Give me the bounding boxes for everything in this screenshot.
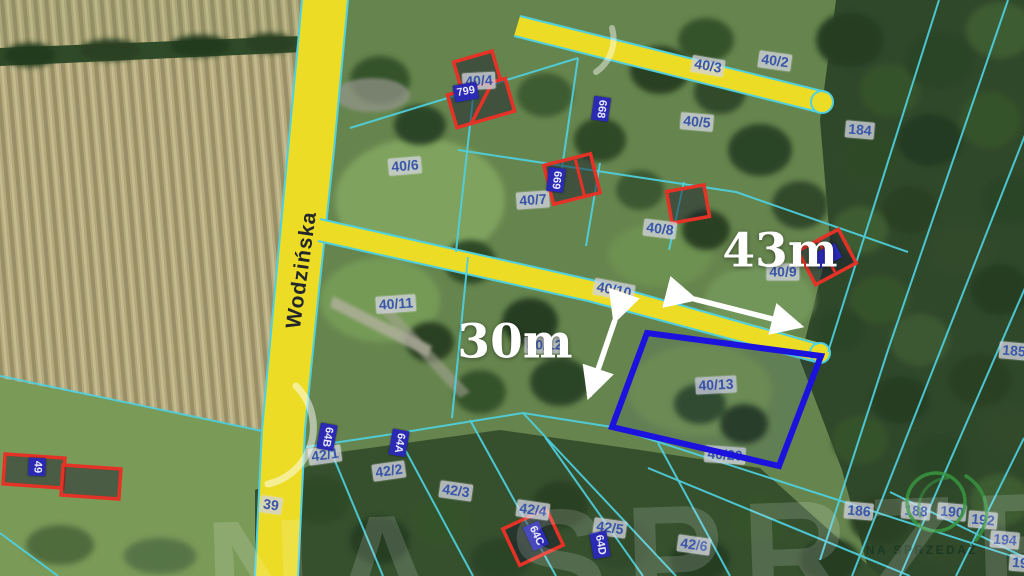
terrain xyxy=(0,0,1024,576)
parcel-label-185: 185 xyxy=(999,341,1024,360)
parcel-label-184: 184 xyxy=(845,120,876,139)
parcel-label-186: 186 xyxy=(844,501,875,520)
parcel-label-40-6: 40/6 xyxy=(388,156,423,176)
parcel-label-188: 188 xyxy=(901,501,932,520)
building-label-49: 49 xyxy=(28,458,46,477)
parcel-label-190: 190 xyxy=(937,502,968,521)
parcel-label-40-5: 40/5 xyxy=(680,112,715,132)
measurement-30m: 30m xyxy=(457,315,572,370)
satellite-map-view[interactable]: 40/2 40/3 40/4 40/5 40/6 40/7 40/8 40/9 … xyxy=(0,0,1024,576)
parcel-label-40-13: 40/13 xyxy=(695,375,737,394)
building-label-669: 669 xyxy=(546,167,566,193)
map-base-layer xyxy=(0,0,1024,576)
parcel-label-40-20: 40/20 xyxy=(704,445,746,465)
parcel-label-192: 192 xyxy=(968,510,999,529)
parcel-label-196-partial: 19 xyxy=(1009,554,1024,573)
parcel-label-40-11: 40/11 xyxy=(375,294,416,314)
building-label-668: 668 xyxy=(591,96,611,122)
building-40-8 xyxy=(667,185,710,223)
measurement-43m: 43m xyxy=(722,224,837,279)
road-number-39: 39 xyxy=(259,495,283,515)
watermark-small-text: NA SPRZEDAŻ xyxy=(866,543,978,557)
parcel-label-40-7: 40/7 xyxy=(516,190,550,209)
building-sw-b xyxy=(61,465,121,499)
parcel-label-194: 194 xyxy=(990,530,1021,549)
